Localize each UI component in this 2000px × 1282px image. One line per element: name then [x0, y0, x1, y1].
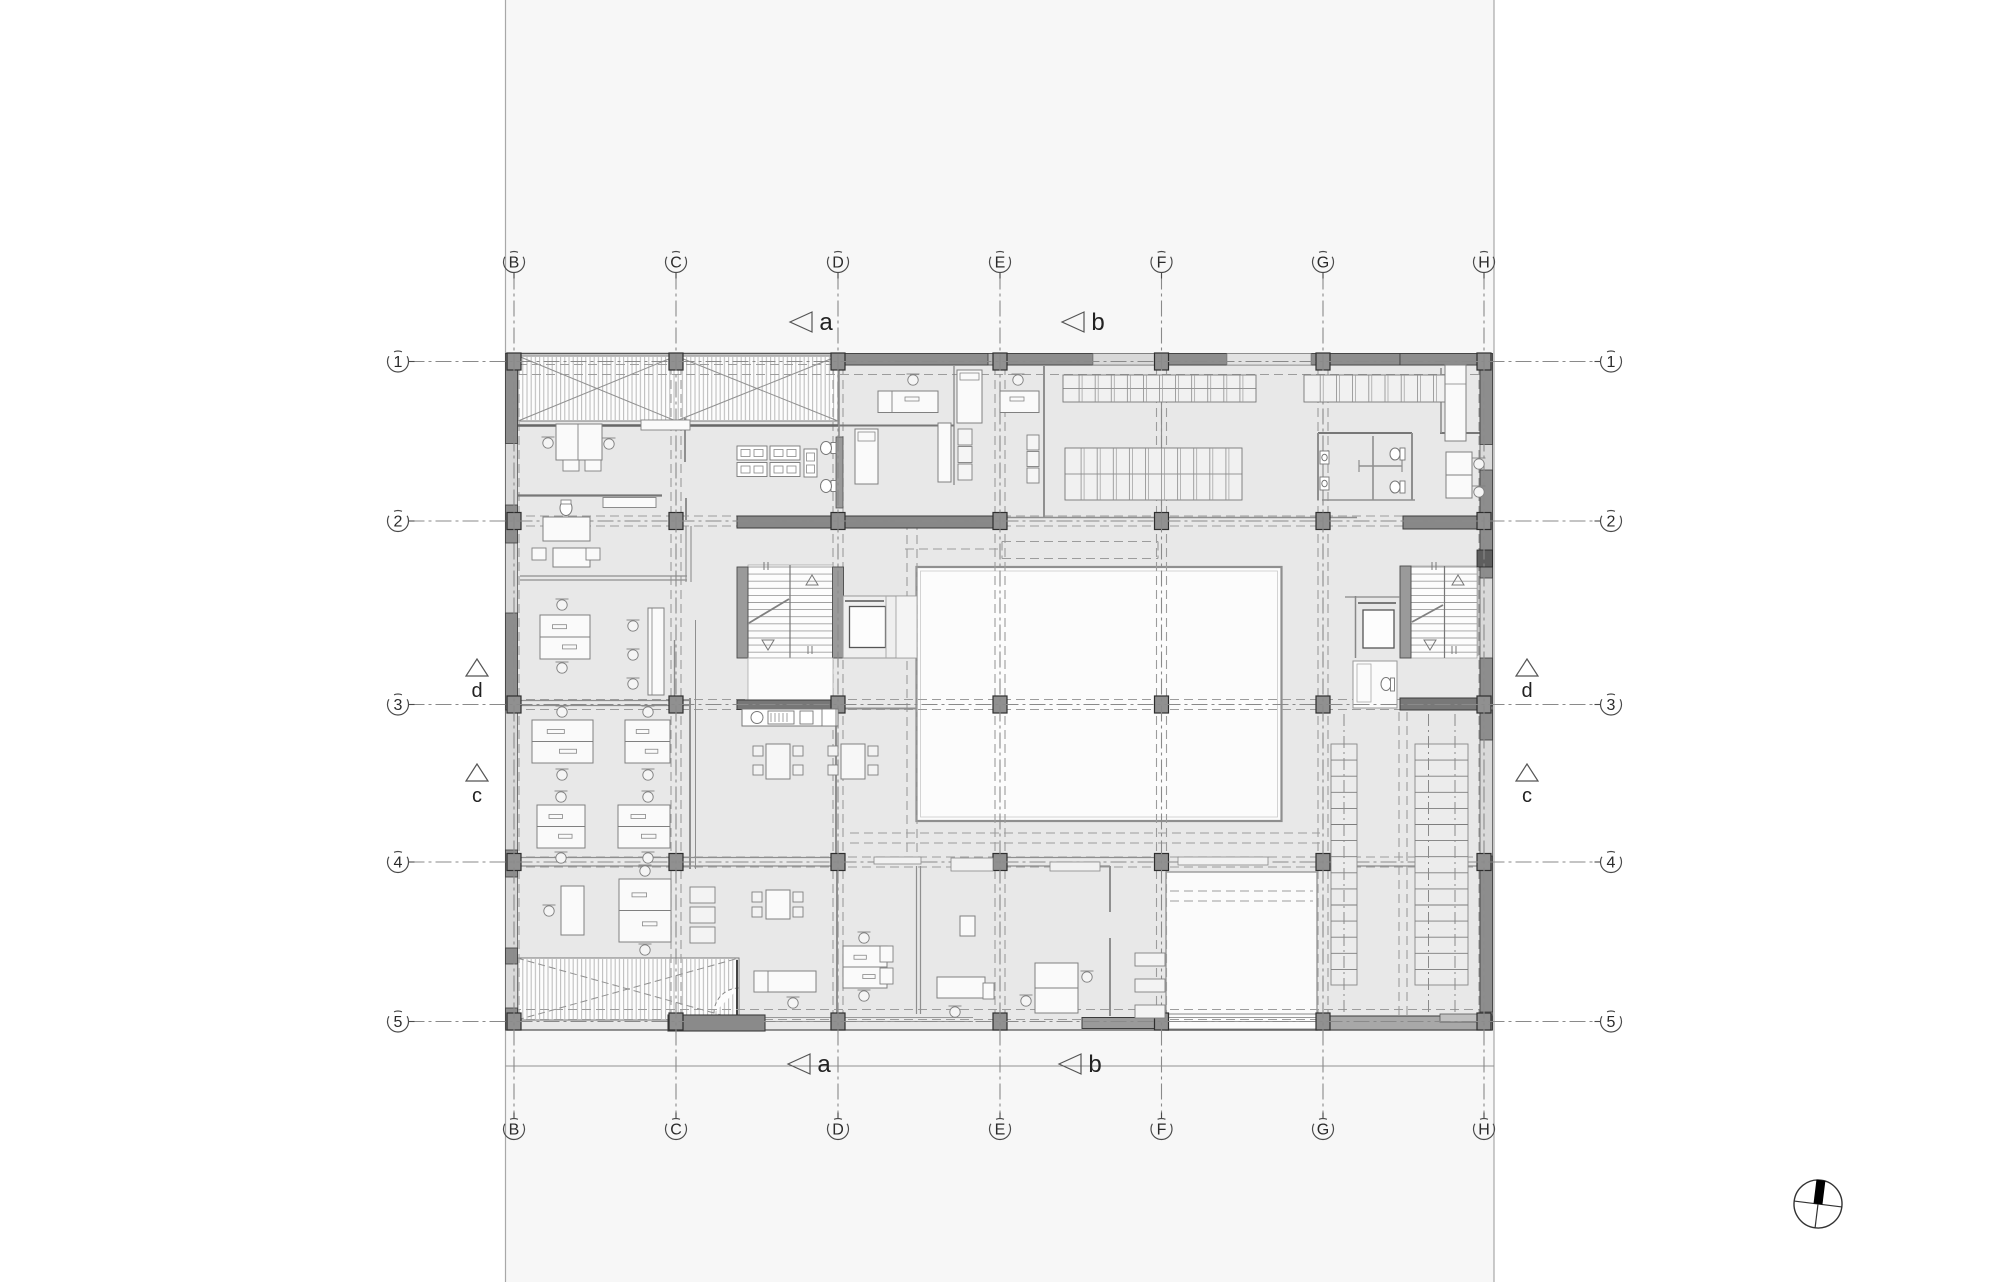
svg-text:5: 5 — [1607, 1014, 1616, 1031]
svg-text:1: 1 — [1607, 354, 1616, 371]
svg-text:E: E — [995, 255, 1006, 272]
svg-text:G: G — [1317, 255, 1329, 272]
svg-text:a: a — [819, 309, 833, 336]
svg-text:E: E — [995, 1122, 1006, 1139]
svg-text:2: 2 — [1607, 514, 1616, 531]
svg-text:H: H — [1478, 255, 1490, 272]
svg-text:b: b — [1091, 309, 1104, 336]
svg-text:d: d — [471, 680, 482, 702]
svg-text:D: D — [832, 255, 844, 272]
svg-text:c: c — [1522, 785, 1532, 807]
svg-text:F: F — [1157, 1122, 1167, 1139]
svg-text:d: d — [1521, 680, 1532, 702]
svg-text:a: a — [817, 1051, 831, 1078]
svg-text:F: F — [1157, 255, 1167, 272]
svg-text:3: 3 — [1607, 697, 1616, 714]
svg-text:B: B — [509, 1122, 520, 1139]
svg-text:4: 4 — [1607, 855, 1616, 872]
svg-text:H: H — [1478, 1122, 1490, 1139]
svg-text:4: 4 — [394, 855, 403, 872]
svg-text:D: D — [832, 1122, 844, 1139]
svg-text:b: b — [1088, 1051, 1101, 1078]
svg-text:1: 1 — [394, 354, 403, 371]
svg-text:5: 5 — [394, 1014, 403, 1031]
svg-text:B: B — [509, 255, 520, 272]
svg-text:2: 2 — [394, 514, 403, 531]
svg-text:C: C — [670, 1122, 682, 1139]
svg-text:G: G — [1317, 1122, 1329, 1139]
svg-text:3: 3 — [394, 697, 403, 714]
svg-text:C: C — [670, 255, 682, 272]
svg-text:c: c — [472, 785, 482, 807]
